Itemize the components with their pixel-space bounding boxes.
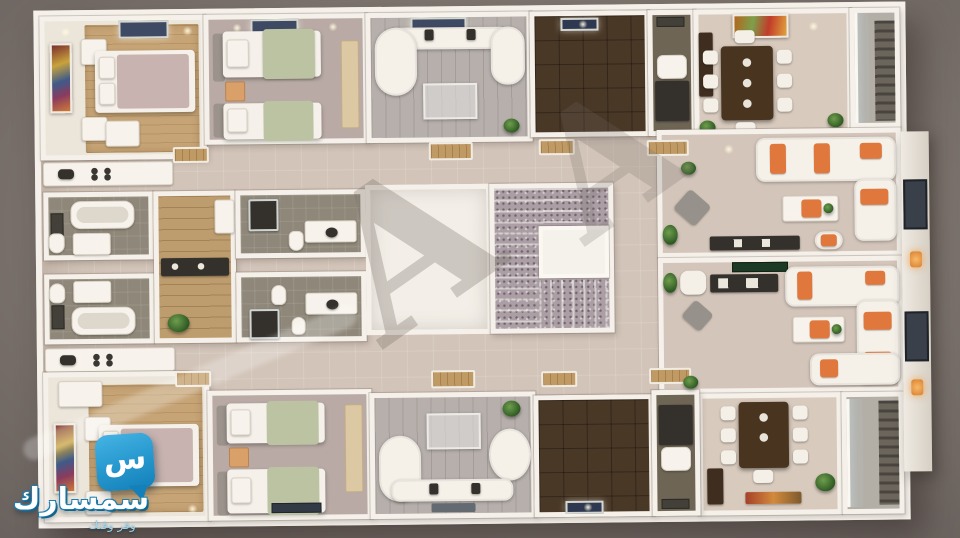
- brand-logo: س سمسارك وفر وقتك: [2, 426, 246, 538]
- room-dining-room-bottom: [697, 392, 842, 516]
- desk-chair: [680, 271, 706, 295]
- room-twin-bedroom-top: [203, 13, 368, 145]
- plant: [502, 401, 520, 417]
- plates: [741, 56, 754, 110]
- facade-window: [905, 311, 930, 361]
- salon-sofa-horizontal: [756, 137, 896, 182]
- dining-chair: [777, 50, 792, 64]
- toilet: [271, 285, 286, 305]
- room-bathroom-a: [43, 191, 154, 260]
- coffee-table: [782, 195, 838, 222]
- facade-window: [903, 179, 928, 229]
- glass-coffee-table: [423, 83, 477, 120]
- dining-chair: [793, 427, 808, 441]
- floor-lamp: [425, 29, 434, 40]
- room-corridor-wood: [153, 190, 237, 343]
- ceiling-light: [583, 503, 592, 512]
- dining-chair: [777, 98, 792, 112]
- desk-items: [718, 278, 768, 289]
- bed-blanket-green: [263, 29, 316, 80]
- coffee-table: [793, 316, 845, 343]
- shower-box: [73, 281, 111, 303]
- room-staircase: [489, 183, 615, 334]
- wardrobe: [341, 40, 360, 128]
- nightstand-orange: [225, 81, 245, 101]
- room-bathroom-small-top: [647, 10, 696, 136]
- logo-icon-glyph: س: [102, 442, 147, 476]
- room-bathroom-b: [44, 273, 155, 344]
- kitchen-sink: [58, 169, 74, 179]
- wall-art: [50, 43, 73, 113]
- table-plant: [823, 203, 833, 213]
- dining-chair: [721, 428, 736, 442]
- plant: [167, 314, 189, 332]
- wardrobe: [58, 381, 102, 407]
- stair-flight-left: [494, 188, 539, 328]
- right-facade: [901, 131, 933, 471]
- mirror: [661, 499, 689, 509]
- toilet: [49, 233, 65, 253]
- room-bathroom-c: [235, 189, 366, 258]
- bed-pillow: [99, 57, 115, 79]
- floor-plan-render: A A س سمسارك وفر وقتك: [0, 0, 960, 538]
- bed-blanket: [117, 54, 190, 109]
- wardrobe: [344, 404, 363, 492]
- elevator-box: [539, 226, 610, 279]
- vanity-counter: [658, 405, 692, 445]
- console-items: [169, 262, 209, 271]
- hall-cabinet: [214, 199, 234, 233]
- green-top-cabinet: [732, 262, 788, 273]
- room-dining-room-top: [693, 8, 852, 148]
- cooktop-burners: [88, 167, 114, 181]
- bathtub: [71, 307, 135, 336]
- plant: [827, 113, 843, 127]
- tub-basin: [76, 207, 128, 224]
- ceiling-light: [60, 27, 70, 37]
- double-bed: [95, 50, 196, 113]
- wall-lamp-orange: [910, 251, 922, 267]
- door-threshold: [431, 370, 475, 388]
- salon-sofa-vertical: [854, 179, 897, 241]
- vanity: [305, 220, 357, 243]
- room-tiled-room-top: [529, 10, 650, 137]
- ceiling-light: [808, 21, 818, 31]
- sink: [657, 55, 687, 79]
- door-threshold: [647, 140, 689, 156]
- dining-chair: [703, 74, 718, 88]
- room-bathroom-small-bottom: [651, 390, 700, 516]
- accent-armchair: [815, 231, 843, 249]
- room-living-room-bottom: [369, 391, 536, 519]
- plant: [681, 162, 696, 175]
- table-plant: [832, 324, 842, 334]
- plant: [683, 376, 698, 389]
- room-balcony-top: [849, 8, 900, 129]
- bathtub: [70, 201, 134, 230]
- wall-lamp-orange: [911, 379, 923, 395]
- bench: [105, 120, 139, 146]
- sink-bowl: [326, 227, 338, 237]
- bed-blanket-green: [266, 401, 318, 446]
- vanity-counter: [655, 81, 689, 121]
- room-stair-landing: [365, 184, 493, 335]
- black-desk: [710, 274, 778, 293]
- room-tiled-room-bottom: [533, 394, 654, 517]
- floor-lamp: [467, 29, 476, 40]
- kitchen-sink: [60, 355, 76, 365]
- shower: [248, 199, 278, 231]
- plant: [663, 225, 678, 245]
- brand-tagline: وفر وقتك: [66, 518, 158, 532]
- single-bed: [223, 103, 321, 140]
- curved-sofa-left-arm: [375, 28, 418, 96]
- ceiling-window: [118, 20, 168, 39]
- dark-console: [161, 258, 229, 277]
- glass-wall: [854, 13, 869, 123]
- door-threshold: [429, 142, 473, 160]
- plant: [815, 473, 835, 491]
- ceiling-light: [182, 26, 192, 36]
- room-salon-top: [657, 128, 902, 259]
- bed-pillow: [227, 39, 249, 67]
- tub-basin: [77, 313, 129, 330]
- dining-chair: [703, 98, 718, 112]
- kitchen-top: [41, 159, 207, 193]
- ceiling-light: [328, 22, 337, 31]
- room-balcony-bottom: [841, 391, 904, 514]
- slat-screen: [878, 401, 899, 505]
- dining-table: [738, 402, 789, 469]
- stair-flight-bottom: [539, 280, 609, 329]
- toilet: [49, 283, 65, 303]
- room-master-bedroom-top: [39, 15, 206, 161]
- toilet: [289, 231, 304, 251]
- dining-chair: [753, 470, 773, 483]
- curved-sofa-back: [391, 479, 513, 502]
- brand-name: سمسارك: [2, 482, 160, 517]
- kitchen-counter: [43, 161, 173, 186]
- ceiling-light: [578, 20, 587, 29]
- single-bed: [223, 31, 321, 78]
- curved-sofa-right-arm: [491, 26, 526, 84]
- gray-rug: [681, 299, 714, 331]
- glass-wall: [846, 399, 863, 507]
- floor-lamp: [471, 483, 480, 494]
- nightstand: [81, 117, 107, 141]
- dining-chair: [735, 30, 755, 43]
- plant: [503, 118, 519, 132]
- curved-sofa-right-arm: [489, 428, 532, 480]
- shower-box: [73, 233, 111, 255]
- dining-chair: [721, 450, 736, 464]
- dining-chair: [777, 74, 792, 88]
- bed-pillow: [227, 108, 247, 132]
- dining-chair: [720, 406, 735, 420]
- ceiling-light: [232, 23, 241, 32]
- bed-blanket-green: [263, 101, 313, 142]
- door-threshold: [541, 371, 577, 387]
- mirror: [51, 305, 64, 329]
- dining-chair: [793, 449, 808, 463]
- bed-pillow: [99, 83, 115, 105]
- tv-console: [710, 236, 800, 251]
- slat-screen: [874, 21, 895, 121]
- dining-chair: [792, 405, 807, 419]
- dining-table: [721, 46, 774, 121]
- salon-sofa-bottom: [810, 353, 900, 386]
- ceiling-light: [724, 144, 734, 154]
- door-threshold: [539, 139, 575, 155]
- room-salon-bottom: [658, 255, 903, 394]
- sideboard-cabinet: [707, 468, 723, 504]
- gray-rug: [673, 189, 711, 227]
- tv-panel: [271, 503, 321, 514]
- glass-coffee-table: [427, 413, 481, 450]
- dining-chair: [703, 50, 718, 64]
- door-threshold: [173, 147, 209, 163]
- cooktop-burners: [90, 353, 116, 367]
- console-screens: [720, 239, 790, 248]
- floor-lamp: [429, 483, 438, 494]
- mirror: [656, 17, 684, 27]
- colorful-rug: [745, 492, 801, 505]
- plates: [758, 410, 771, 460]
- rug: [431, 503, 475, 512]
- plant: [663, 273, 677, 293]
- sink: [661, 447, 691, 471]
- room-living-room-top: [365, 11, 532, 143]
- kitchen-counter: [45, 347, 175, 372]
